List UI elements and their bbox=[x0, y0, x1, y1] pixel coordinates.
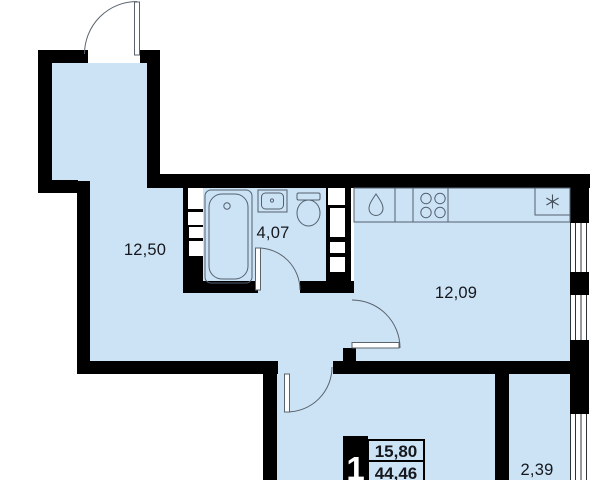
entry-door bbox=[85, 2, 140, 56]
living-doorway-floor bbox=[278, 361, 333, 374]
balcony-window bbox=[570, 414, 587, 480]
kitchen-window-upper bbox=[570, 223, 587, 272]
corridor-floor bbox=[90, 293, 356, 361]
room-fill-layer bbox=[52, 63, 570, 480]
room-label-hallway: 12,50 bbox=[124, 241, 166, 259]
hallway-floor bbox=[52, 63, 147, 193]
area-badge: 1 15,80 44,46 bbox=[343, 436, 424, 480]
room-label-kitchen: 12,09 bbox=[435, 284, 477, 302]
kitchen-window-lower bbox=[570, 295, 587, 340]
kitchen-floor bbox=[354, 188, 570, 361]
room-label-balcony: 2,39 bbox=[521, 461, 554, 479]
floor-plan: 12,50 4,07 12,09 2,39 1 15,80 44,46 bbox=[0, 0, 614, 480]
badge-total-area: 44,46 bbox=[375, 464, 418, 480]
bathroom-doorway-floor bbox=[258, 281, 300, 293]
badge-living-area: 15,80 bbox=[375, 442, 418, 461]
badge-room-count: 1 bbox=[346, 450, 364, 480]
floor-plan-svg: 12,50 4,07 12,09 2,39 1 15,80 44,46 bbox=[0, 0, 614, 480]
room-label-bathroom: 4,07 bbox=[257, 224, 290, 242]
